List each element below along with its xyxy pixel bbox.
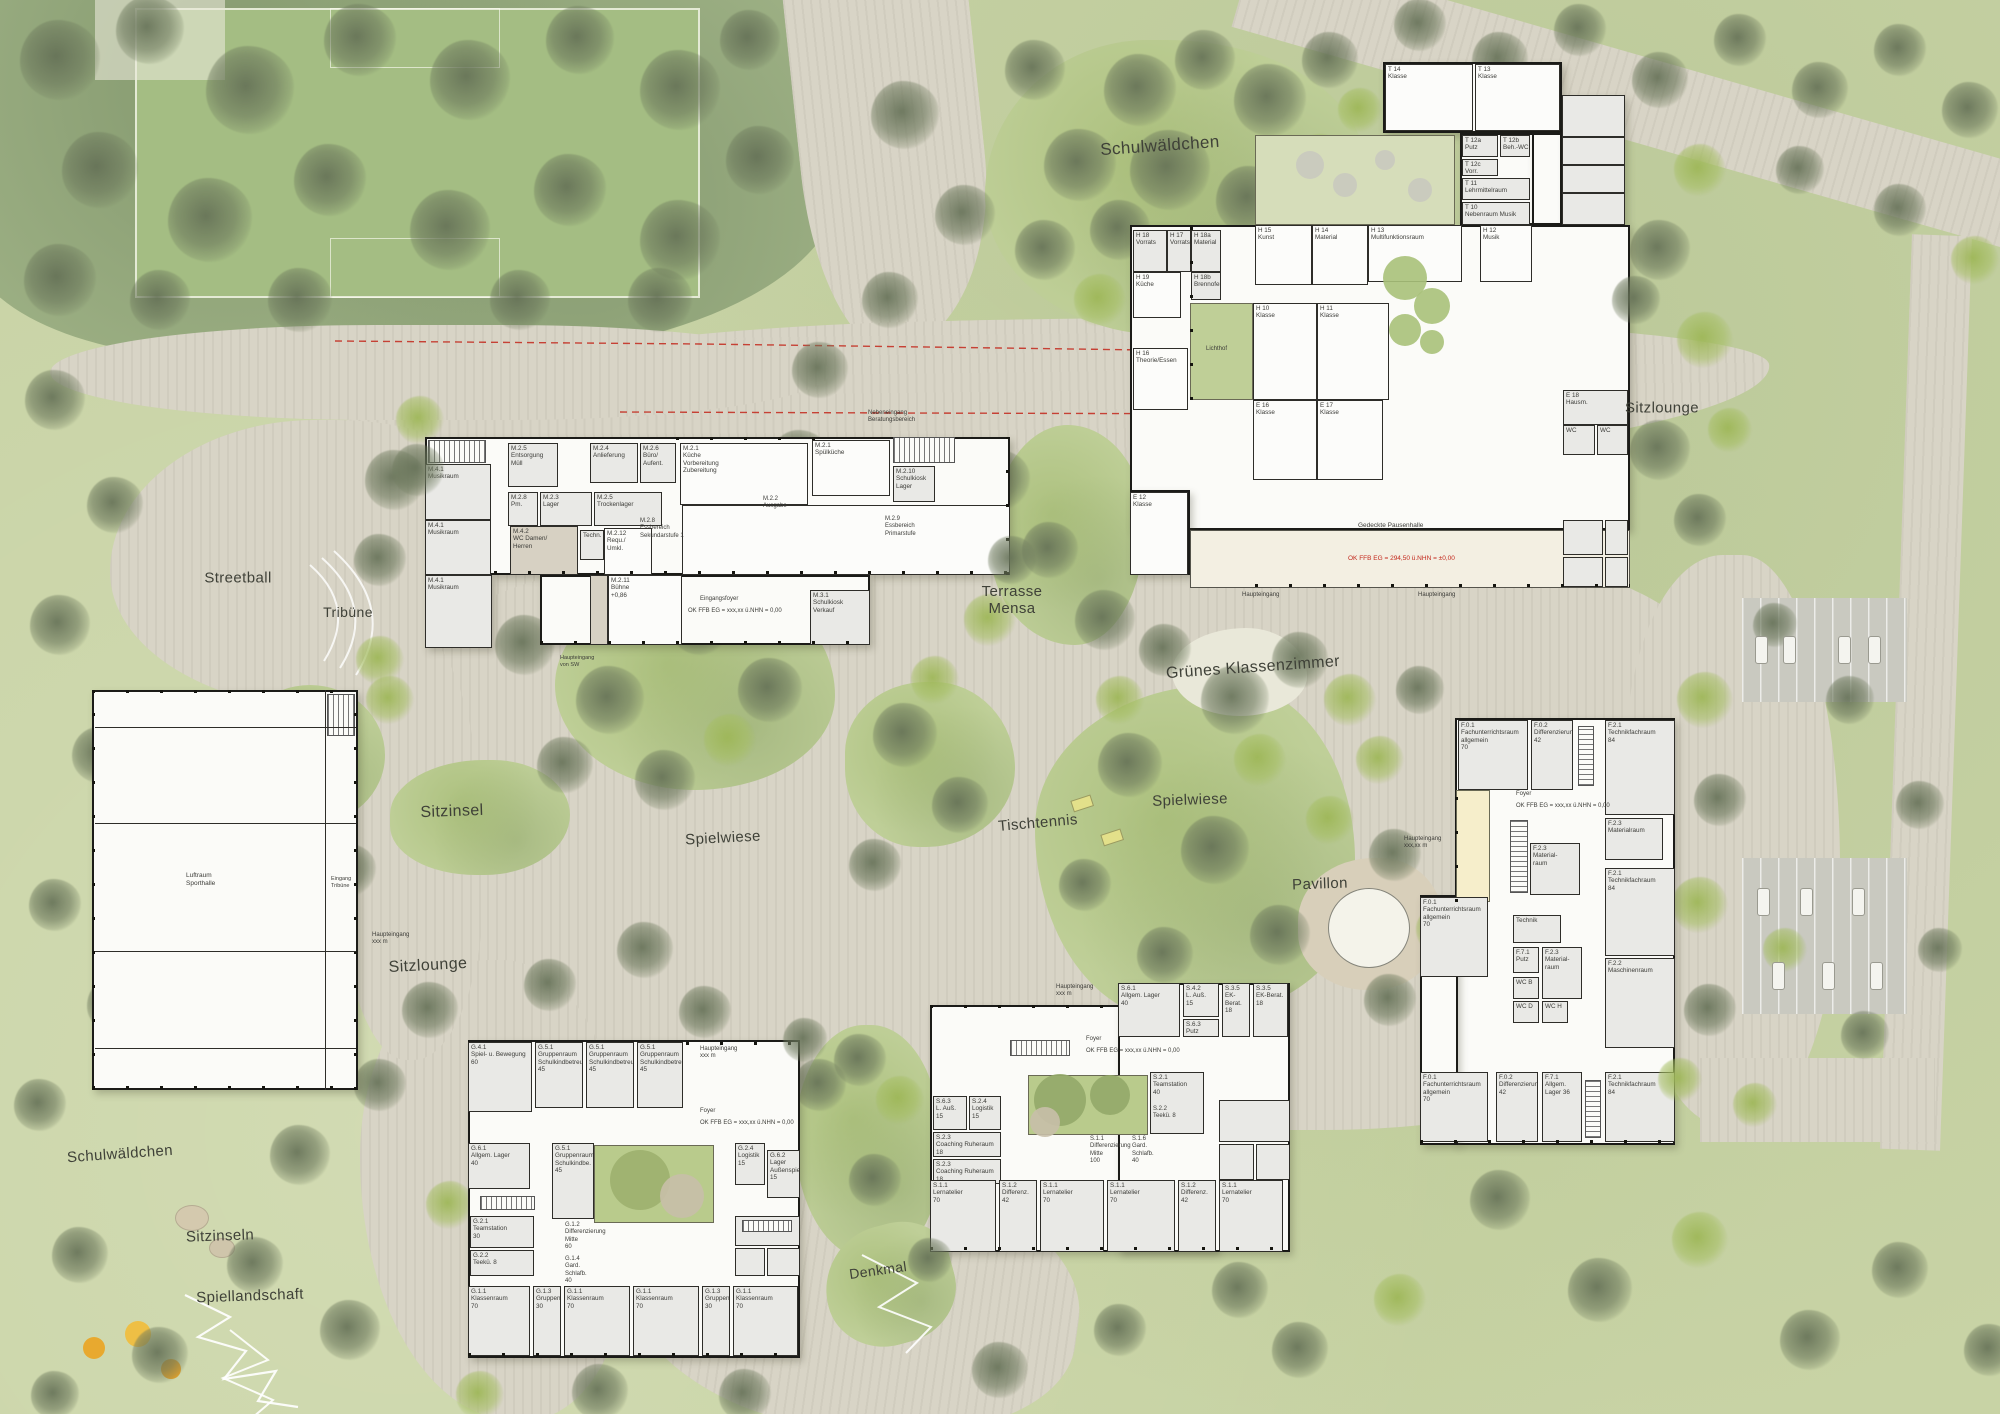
room-label: H 16 Theorie/Essen xyxy=(1136,350,1177,365)
room-label: M.3.1 Schulkiosk Verkauf xyxy=(813,592,843,614)
room-g-5-1: G.5.1 Gruppenraum Schulkindbetreuung 45 xyxy=(535,1042,583,1108)
site-label-spiellandschaft: Spiellandschaft xyxy=(196,1286,304,1307)
room-h-19: H 19 Küche xyxy=(1133,272,1181,318)
plan-text: G.1.4 Gard. Schlafb. 40 xyxy=(565,1256,587,1285)
room-h-16: H 16 Theorie/Essen xyxy=(1133,348,1188,410)
room-label: M.4.1 Musikraum xyxy=(428,466,459,481)
plan-text: S.1.1 Differenzierung Mitte 100 xyxy=(1090,1136,1131,1165)
room-g-1-3: G.1.3 Gruppenr. 30 xyxy=(702,1286,730,1356)
room-label: M.2.3 Lager xyxy=(543,494,559,509)
room-label: WC B xyxy=(1516,979,1532,986)
room xyxy=(1562,137,1625,165)
plan-text: Eingang Tribüne xyxy=(331,876,351,889)
plan-text: Haupteingang von SW xyxy=(560,655,594,668)
room-s-6-1: S.6.1 Allgem. Lager 40 xyxy=(1118,983,1180,1037)
tree xyxy=(52,1227,108,1283)
plan-text: Haupteingang xyxy=(1242,592,1279,599)
room xyxy=(1219,1100,1290,1142)
room: WC xyxy=(1563,425,1595,455)
plan-text: Foyer xyxy=(1086,1036,1101,1043)
room-label: WC xyxy=(1600,427,1611,434)
room-label: F.0.2 Differenzierung 42 xyxy=(1534,722,1573,744)
room xyxy=(1605,520,1628,555)
plan-text: M.2.2 Ausgabe xyxy=(763,496,787,511)
room-h-11: H 11 Klasse xyxy=(1317,303,1389,400)
room-label: S.4.2 L. Auß. 15 xyxy=(1186,985,1206,1007)
room-s-1-1: S.1.1 Lernatelier 70 xyxy=(1107,1180,1175,1252)
tree xyxy=(1708,408,1752,452)
plan-tree-circle xyxy=(1389,314,1421,346)
room-label: S.1.1 Lernatelier 70 xyxy=(1043,1182,1073,1204)
tree xyxy=(1942,82,1998,138)
parked-car xyxy=(1757,888,1770,916)
room-g-1-1: G.1.1 Klassenraum 70 xyxy=(633,1286,699,1356)
room-f-2-1: F.2.1 Technikfachraum 84 xyxy=(1605,720,1675,815)
column-row xyxy=(1006,437,1009,575)
room-s-3-5: S.3.5 EK-Berat. 18 xyxy=(1253,983,1288,1037)
column-row xyxy=(92,1086,358,1089)
room xyxy=(682,505,1010,575)
room-g-2-1: G.2.1 Teamstation 30 xyxy=(470,1216,534,1248)
tree xyxy=(1470,1170,1530,1230)
grass-island-spielwiese-east xyxy=(1035,685,1355,1020)
plan-text: S.2.2 Teekü. 8 xyxy=(1153,1106,1176,1121)
room-label: M.2.5 Entsorgung Müll xyxy=(511,445,543,467)
site-label-sitzinsel: Sitzinsel xyxy=(420,802,484,822)
room-label: Technik xyxy=(1516,917,1537,924)
pavillon-structure xyxy=(1328,888,1410,968)
room-s-1-2: S.1.2 Differenz. 42 xyxy=(999,1180,1037,1252)
room-e-18: E 18 Hausm. xyxy=(1563,390,1628,425)
tree xyxy=(30,595,90,655)
column-row xyxy=(1455,790,1458,902)
room-label: E 18 Hausm. xyxy=(1566,392,1588,407)
room-s-2-3: S.2.3 Coaching Ruheraum 18 xyxy=(933,1132,1001,1157)
parked-car xyxy=(1822,962,1835,990)
room-label: WC xyxy=(1566,427,1577,434)
room-label: T 13 Klasse xyxy=(1478,66,1497,81)
wall-line xyxy=(95,1048,356,1049)
site-label-sitzinseln: Sitzinseln xyxy=(186,1226,255,1245)
room-s-6-3: S.6.3 L. Auß. 15 xyxy=(933,1096,967,1130)
plan-text: M.2.8 Essbereich Sekundarstufe 1 xyxy=(640,518,684,540)
column-row xyxy=(540,641,870,644)
parked-car xyxy=(1870,962,1883,990)
tree xyxy=(320,1300,380,1360)
room-label: T 12b Beh.-WC xyxy=(1503,137,1529,152)
column-row xyxy=(1190,225,1193,400)
room-label: F.7.1 Putz xyxy=(1516,949,1530,964)
plan-tree-circle xyxy=(1030,1107,1060,1137)
room-label: G.1.1 Klassenraum 70 xyxy=(471,1288,508,1310)
room-s-1-1: S.1.1 Lernatelier 70 xyxy=(930,1180,996,1252)
plan-text: Haupteingang xxx m xyxy=(1056,984,1093,999)
parked-car xyxy=(1800,888,1813,916)
tree xyxy=(1872,1242,1928,1298)
room-label: T 14 Klasse xyxy=(1388,66,1407,81)
room-h-18: H 18 Vorrats xyxy=(1133,230,1167,272)
plan-tree-circle xyxy=(1420,330,1444,354)
room xyxy=(1562,193,1625,225)
room-f-2-1: F.2.1 Technikfachraum 84 xyxy=(1605,868,1675,956)
room-e-12: E 12 Klasse xyxy=(1130,492,1188,575)
room-s-4-2: S.4.2 L. Auß. 15 xyxy=(1183,983,1219,1017)
plan-text: Haupteingang xxx,xx m xyxy=(1404,836,1441,851)
room-f-2-2: F.2.2 Maschinenraum xyxy=(1605,958,1675,1048)
path-top-vertical xyxy=(781,0,1005,359)
room-label: G.1.1 Klassenraum 70 xyxy=(567,1288,604,1310)
room-label: F.2.1 Technikfachraum 84 xyxy=(1608,870,1656,892)
room xyxy=(590,575,608,645)
room-label: M.4.2 WC Damen/ Herren xyxy=(513,528,547,550)
room-s-3-5: S.3.5 EK-Berat. 18 xyxy=(1222,983,1250,1037)
room-label: T 11 Lehrmittelraum xyxy=(1465,180,1507,195)
column-row xyxy=(354,690,357,1090)
tree xyxy=(1841,1011,1889,1059)
room-label: F.2.1 Technikfachraum 84 xyxy=(1608,1074,1656,1096)
room-label: G.1.1 Klassenraum 70 xyxy=(636,1288,673,1310)
column-row xyxy=(468,1353,800,1356)
plan-text: G.1.2 Differenzierung Mitte 60 xyxy=(565,1222,606,1251)
parked-car xyxy=(1868,636,1881,664)
column-row xyxy=(676,437,816,440)
room-label: T 12a Putz xyxy=(1465,137,1481,152)
room-label: F.2.3 Materialraum xyxy=(1608,820,1645,835)
room xyxy=(1256,1144,1290,1180)
parked-car xyxy=(1838,636,1851,664)
plan-text: Haupteingang xxx m xyxy=(372,932,409,947)
plan-text: Nebeneingang Beratungsbereich xyxy=(868,410,915,425)
room-f-2-3: F.2.3 Materialraum xyxy=(1605,818,1663,860)
room-f-2-3: F.2.3 Material- raum xyxy=(1530,843,1580,895)
room xyxy=(1219,1144,1254,1180)
room-label: M.2.10 Schulkiosk Lager xyxy=(896,468,926,490)
room-m-4-2: M.4.2 WC Damen/ Herren xyxy=(510,526,578,575)
room-label: F.2.1 Technikfachraum 84 xyxy=(1608,722,1656,744)
room xyxy=(1562,165,1625,193)
room-label: M.2.4 Anlieferung xyxy=(593,445,625,460)
room-label: WC D xyxy=(1516,1003,1533,1010)
room-label: S.1.2 Differenz. 42 xyxy=(1002,1182,1029,1204)
room-label: G.5.1 Gruppenraum Schulkindbetreuung 45 xyxy=(538,1044,583,1074)
plan-tree-circle xyxy=(1090,1075,1130,1115)
plan-text: Gedeckte Pausenhalle xyxy=(1358,522,1423,530)
room-label: F.2.3 Material- raum xyxy=(1545,949,1570,971)
room-label: S.1.1 Lernatelier 70 xyxy=(1222,1182,1252,1204)
tree xyxy=(1568,1258,1632,1322)
room-m-2-6: M.2.6 Büro/ Aufent. xyxy=(640,443,676,483)
room-e-17: E 17 Klasse xyxy=(1317,400,1383,480)
plan-text: OK FFB EG = xxx,xx ü.NHN = 0,00 xyxy=(1516,803,1610,810)
room-label: S.2.1 Teamstation 40 xyxy=(1153,1074,1187,1096)
path-field-south xyxy=(50,325,830,420)
room-label: T 10 Nebenraum Musik xyxy=(1465,204,1516,219)
room-label: S.1.1 Lernatelier 70 xyxy=(1110,1182,1140,1204)
room-f-2-1: F.2.1 Technikfachraum 84 xyxy=(1605,1072,1675,1142)
room-label: Techn. xyxy=(583,532,602,539)
tree xyxy=(31,1371,79,1414)
stair xyxy=(1585,1080,1601,1138)
room xyxy=(1562,95,1625,137)
site-label-pavillon: Pavillon xyxy=(1292,875,1348,894)
room-m-2-3: M.2.3 Lager xyxy=(540,492,592,526)
room-label: M.2.12 Requ./ Umkl. xyxy=(607,530,626,552)
building-sporthalle xyxy=(92,690,358,1090)
plan-text: Eingangsfoyer xyxy=(700,596,738,603)
column-row xyxy=(1420,1140,1675,1143)
plan-text: OK FFB EG = xxx,xx ü.NHN = 0,00 xyxy=(688,608,782,615)
room: Techn. xyxy=(580,530,604,560)
room-label: S.3.5 EK-Berat. 18 xyxy=(1225,985,1249,1015)
play-dot-orange-2 xyxy=(161,1359,181,1379)
room-t-10: T 10 Nebenraum Musik xyxy=(1462,202,1530,225)
room-s-6-3: S.6.3 Putz xyxy=(1183,1019,1219,1037)
column-row xyxy=(686,1042,800,1045)
room-label: F.0.1 Fachunterrichtsraum allgemein 70 xyxy=(1461,722,1519,752)
room: WC xyxy=(1597,425,1628,455)
existing-structures xyxy=(95,0,225,80)
room-label: G.1.3 Gruppenr. 30 xyxy=(536,1288,561,1310)
stair xyxy=(1578,726,1594,786)
grass-island-center xyxy=(845,682,1015,847)
room-label: H 11 Klasse xyxy=(1320,305,1339,320)
room-t-12c: T 12c Vorr. xyxy=(1462,159,1498,176)
room-label: G.6.2 Lager Außenspielg. 15 xyxy=(770,1152,800,1182)
room-h-18b: H 18b Brennofen xyxy=(1191,272,1221,300)
room-label: G.1.3 Gruppenr. 30 xyxy=(705,1288,730,1310)
room-label: F.2.3 Material- raum xyxy=(1533,845,1558,867)
room-s-1-1: S.1.1 Lernatelier 70 xyxy=(1219,1180,1283,1252)
tree xyxy=(1212,1262,1268,1318)
room xyxy=(767,1248,800,1276)
room-label: H 15 Kunst xyxy=(1258,227,1274,242)
room-label: F.0.2 Differenzierung 42 xyxy=(1499,1074,1538,1096)
tree xyxy=(227,1237,283,1293)
room-label: WC H xyxy=(1545,1003,1562,1010)
room-m-2-5: M.2.5 Entsorgung Müll xyxy=(508,443,558,487)
room-label: M.2.1 Spülküche xyxy=(815,442,844,457)
site-label-terrasse-mensa: Terrasse Mensa xyxy=(982,583,1043,617)
room-label: F.2.2 Maschinenraum xyxy=(1608,960,1653,975)
room xyxy=(1605,557,1628,587)
plan-tree-circle xyxy=(1414,288,1450,324)
room-m-2-1: M.2.1 Küche Vorbereitung Zubereitung xyxy=(680,443,808,505)
room-g-1-1: G.1.1 Klassenraum 70 xyxy=(564,1286,630,1356)
stair xyxy=(742,1220,792,1232)
room-label: F.7.1 Allgem. Lager 36 xyxy=(1545,1074,1570,1096)
room-label: G.6.1 Allgem. Lager 40 xyxy=(471,1145,510,1167)
tree xyxy=(1964,1324,2000,1376)
room-t-12a: T 12a Putz xyxy=(1462,135,1498,157)
room-g-5-1: G.5.1 Gruppenraum Schulkindbetreuung 45 xyxy=(637,1042,683,1108)
room-f-7-1: F.7.1 Allgem. Lager 36 xyxy=(1542,1072,1582,1142)
room-label: G.2.4 Logistik 15 xyxy=(738,1145,759,1167)
wall-line xyxy=(95,823,356,824)
room-label: F.0.1 Fachunterrichtsraum allgemein 70 xyxy=(1423,1074,1481,1104)
room-h-18a: H 18a Material xyxy=(1191,230,1221,272)
parked-car xyxy=(1783,636,1796,664)
room-m-4-1: M.4.1 Musikraum xyxy=(425,575,492,648)
room-h-12: H 12 Musik xyxy=(1480,225,1532,282)
room-label: G.1.1 Klassenraum 70 xyxy=(736,1288,773,1310)
wall-line xyxy=(325,690,326,1090)
play-dot-orange xyxy=(83,1337,105,1359)
tree xyxy=(1630,220,1690,280)
room-g-6-2: G.6.2 Lager Außenspielg. 15 xyxy=(767,1150,800,1198)
stair xyxy=(480,1196,535,1210)
tree xyxy=(29,879,81,931)
room-g-1-1: G.1.1 Klassenraum 70 xyxy=(468,1286,530,1356)
room-label: G.2.2 Teekü. 8 xyxy=(473,1252,497,1267)
room-s-2-4: S.2.4 Logistik 15 xyxy=(969,1096,1001,1130)
room: Technik xyxy=(1513,915,1561,943)
plan-text: OK FFB EG = 294,50 ü.NHN = ±0,00 xyxy=(1348,555,1455,563)
room xyxy=(428,440,486,463)
sports-field-goal-box-bottom xyxy=(330,238,500,298)
play-dot-yellow xyxy=(125,1321,151,1347)
parked-car xyxy=(1852,888,1865,916)
plan-text: Luftraum Sporthalle xyxy=(186,872,215,888)
room-label: S.1.2 Differenz. 42 xyxy=(1181,1182,1208,1204)
room-h-10: H 10 Klasse xyxy=(1253,303,1317,400)
tree xyxy=(14,1079,66,1131)
room-g-4-1: G.4.1 Spiel- u. Bewegung 60 xyxy=(468,1042,532,1112)
plan-text: OK FFB EG = xxx,xx ü.NHN = 0,00 xyxy=(700,1120,794,1127)
room-g-5-1: G.5.1 Gruppenraum Schulkindbetreuung 45 xyxy=(586,1042,634,1108)
tree xyxy=(1714,14,1766,66)
room-label: H 13 Multifunktionsraum xyxy=(1371,227,1424,242)
room-label: H 18 Vorrats xyxy=(1136,232,1156,247)
room-t-13: T 13 Klasse xyxy=(1475,64,1560,131)
tree xyxy=(1272,1322,1328,1378)
site-label-streetball: Streetball xyxy=(204,570,271,587)
plan-text: Lichthof xyxy=(1206,346,1227,353)
room-label: M.2.6 Büro/ Aufent. xyxy=(643,445,663,467)
room-label: M.4.1 Musikraum xyxy=(428,577,459,592)
wall-line xyxy=(95,951,356,952)
tree xyxy=(1630,420,1690,480)
column-row xyxy=(930,1005,1118,1008)
room-m-4-1: M.4.1 Musikraum xyxy=(425,464,491,520)
plan-text: M.2.9 Essbereich Primarstufe xyxy=(885,516,916,538)
room-g-2-2: G.2.2 Teekü. 8 xyxy=(470,1250,534,1276)
room-label: S.3.5 EK-Berat. 18 xyxy=(1256,985,1283,1007)
room-f-0-2: F.0.2 Differenzierung 42 xyxy=(1531,720,1573,790)
room-s-2-1: S.2.1 Teamstation 40 xyxy=(1150,1072,1204,1134)
room-g-6-1: G.6.1 Allgem. Lager 40 xyxy=(468,1143,530,1189)
room-m-4-1: M.4.1 Musikraum xyxy=(425,520,491,575)
room-s-1-2: S.1.2 Differenz. 42 xyxy=(1178,1180,1216,1252)
room-label: H 14 Material xyxy=(1315,227,1337,242)
room: WC H xyxy=(1542,1001,1568,1023)
room-label: H 17 Vorrats xyxy=(1170,232,1190,247)
site-label-schulw-ldchen: Schulwäldchen xyxy=(66,1142,173,1166)
tree xyxy=(270,1125,330,1185)
room-t-11: T 11 Lehrmittelraum xyxy=(1462,178,1530,200)
room-m-2-10: M.2.10 Schulkiosk Lager xyxy=(893,466,935,502)
room-f-2-3: F.2.3 Material- raum xyxy=(1542,947,1582,999)
parked-car xyxy=(1772,962,1785,990)
site-label-spielwiese: Spielwiese xyxy=(1152,790,1228,810)
site-plan-canvas: Luftraum SporthalleEingang TribüneHaupte… xyxy=(0,0,2000,1414)
room-label: G.5.1 Gruppenraum Schulkindbetreuung 45 xyxy=(589,1044,634,1074)
parking-lot-south xyxy=(1700,1058,1935,1142)
room-label: S.6.3 Putz xyxy=(1186,1021,1201,1036)
room-h-15: H 15 Kunst xyxy=(1255,225,1312,285)
stair xyxy=(327,694,355,736)
room-m-2-8: M.2.8 Pm. xyxy=(508,492,538,526)
tree xyxy=(1674,494,1726,546)
tree xyxy=(1780,1310,1840,1370)
wall-line xyxy=(95,727,356,728)
room-s-1-1: S.1.1 Lernatelier 70 xyxy=(1040,1180,1104,1252)
room xyxy=(1563,520,1603,555)
room-h-17: H 17 Vorrats xyxy=(1167,230,1191,272)
room-m-2-1: M.2.1 Spülküche xyxy=(812,440,890,496)
plan-text: Foyer xyxy=(700,1108,715,1115)
room xyxy=(735,1248,765,1276)
room-label: E 16 Klasse xyxy=(1256,402,1275,417)
room-label: H 10 Klasse xyxy=(1256,305,1275,320)
tree xyxy=(1874,24,1926,76)
room-label: E 17 Klasse xyxy=(1320,402,1339,417)
courtyard-f-bau xyxy=(1456,790,1490,902)
room-label: S.2.3 Coaching Ruheraum 18 xyxy=(936,1134,994,1156)
parked-car xyxy=(1755,636,1768,664)
room-label: S.6.1 Allgem. Lager 40 xyxy=(1121,985,1160,1007)
room-m-2-11: M.2.11 Bühne +0,86 xyxy=(608,575,682,645)
room-label: S.6.3 L. Auß. 15 xyxy=(936,1098,956,1120)
room-g-1-3: G.1.3 Gruppenr. 30 xyxy=(533,1286,561,1356)
room: WC D xyxy=(1513,1001,1539,1023)
room-f-7-1: F.7.1 Putz xyxy=(1513,947,1539,973)
room-f-0-1: F.0.1 Fachunterrichtsraum allgemein 70 xyxy=(1458,720,1528,790)
room-g-5-1: G.5.1 Gruppenraum Schulkindbe. 45 xyxy=(552,1143,594,1219)
room-label: M.2.11 Bühne +0,86 xyxy=(611,577,630,599)
room-label: G.5.1 Gruppenraum Schulkindbe. 45 xyxy=(555,1145,594,1175)
plan-tree-circle xyxy=(1333,173,1357,197)
room-label: H 18b Brennofen xyxy=(1194,274,1221,289)
room-label: M.2.5 Trockenlager xyxy=(597,494,634,509)
plan-tree-circle xyxy=(1408,178,1432,202)
room-h-14: H 14 Material xyxy=(1312,225,1368,285)
building-haupthaus xyxy=(1532,133,1562,225)
room-label: E 12 Klasse xyxy=(1133,494,1152,509)
room-label: G.4.1 Spiel- u. Bewegung 60 xyxy=(471,1044,526,1066)
room-label: G.5.1 Gruppenraum Schulkindbetreuung 45 xyxy=(640,1044,683,1074)
plan-text: Foyer xyxy=(1516,791,1531,798)
plan-text: Haupteingang xyxy=(1418,592,1455,599)
room-m-2-4: M.2.4 Anlieferung xyxy=(590,443,638,483)
tree xyxy=(1374,1274,1426,1326)
room-f-0-2: F.0.2 Differenzierung 42 xyxy=(1496,1072,1538,1142)
column-row xyxy=(92,690,358,693)
parking-lot-middle xyxy=(1742,858,1907,1014)
site-label-trib-ne: Tribüne xyxy=(323,604,373,620)
room-g-2-4: G.2.4 Logistik 15 xyxy=(735,1143,765,1185)
column-row xyxy=(930,1247,1290,1250)
stair xyxy=(1010,1040,1070,1056)
column-row xyxy=(92,690,95,1090)
room-label: S.2.4 Logistik 15 xyxy=(972,1098,993,1120)
room: WC B xyxy=(1513,977,1539,999)
room-label: H 12 Musik xyxy=(1483,227,1499,242)
plan-text: S.1.6 Gard. Schlafb. 40 xyxy=(1132,1136,1154,1165)
column-row xyxy=(494,571,1010,574)
room-t-14: T 14 Klasse xyxy=(1385,64,1473,131)
room-label: M.2.1 Küche Vorbereitung Zubereitung xyxy=(683,445,719,475)
room-f-0-1: F.0.1 Fachunterrichtsraum allgemein 70 xyxy=(1420,1072,1488,1142)
